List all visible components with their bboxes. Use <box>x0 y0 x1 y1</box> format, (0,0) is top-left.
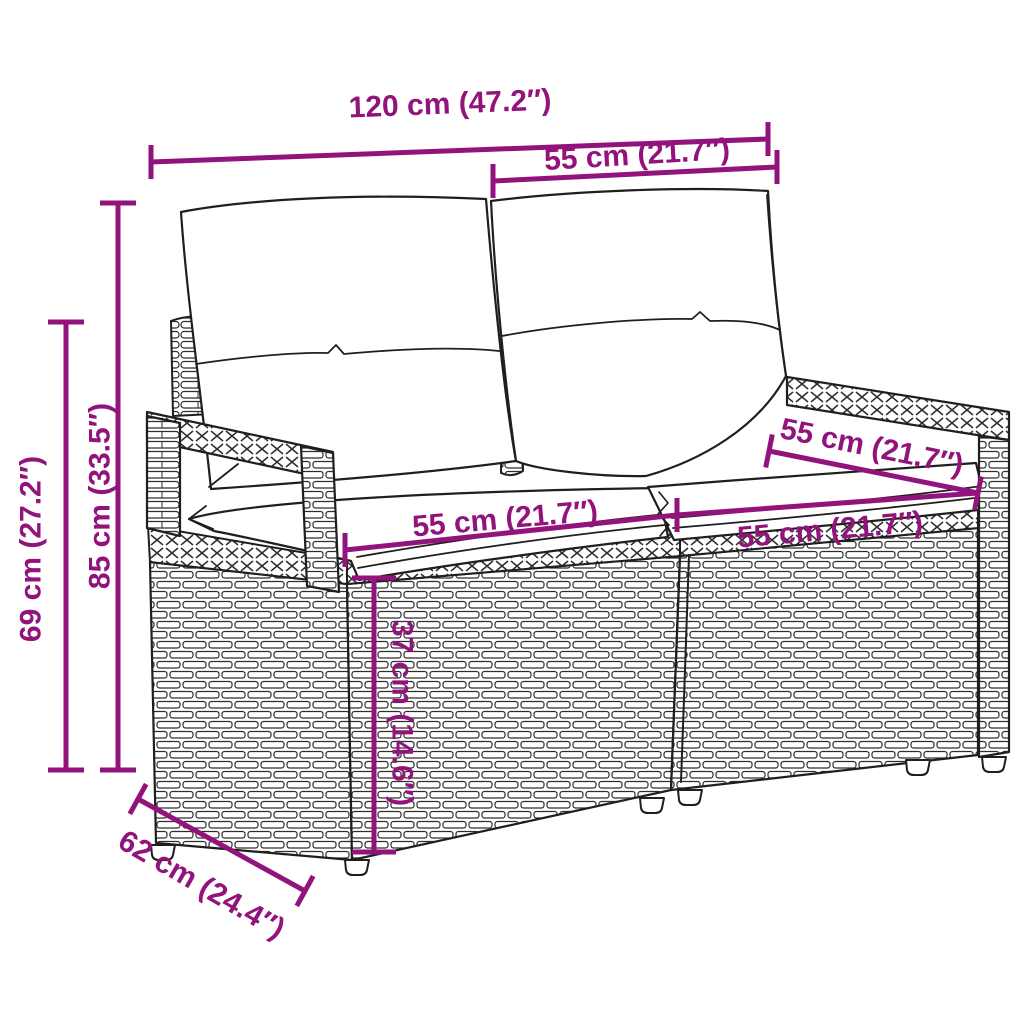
base-front-right-module <box>671 528 978 790</box>
armrest-right-corner-post <box>979 436 1009 757</box>
dimension-total-height: 85 cm (33.5″) <box>84 203 137 770</box>
diagram-svg: 120 cm (47.2″) 55 cm (21.7″) 85 cm (33.5… <box>0 0 1024 1024</box>
armrest-left-inner-post <box>301 446 339 592</box>
dimension-armrest-height: 69 cm (27.2″) <box>15 322 85 770</box>
armrest-left-front-column <box>147 416 180 536</box>
base-side-left <box>150 562 352 860</box>
dimension-label-seat-height: 37 cm (14.6″) <box>386 620 419 806</box>
dimension-label-armrest-height: 69 cm (27.2″) <box>15 456 48 642</box>
product-dimension-diagram: 120 cm (47.2″) 55 cm (21.7″) 85 cm (33.5… <box>0 0 1024 1024</box>
dimension-tick <box>130 784 146 814</box>
dimension-tick <box>297 876 313 906</box>
armrest-right-foot <box>982 757 1006 772</box>
sofa-base <box>148 506 978 875</box>
back-cushion-right <box>491 189 786 476</box>
dimension-tick <box>766 435 773 468</box>
dimension-label-total-width: 120 cm (47.2″) <box>348 83 552 124</box>
dimension-label-total-height: 85 cm (33.5″) <box>84 403 117 589</box>
